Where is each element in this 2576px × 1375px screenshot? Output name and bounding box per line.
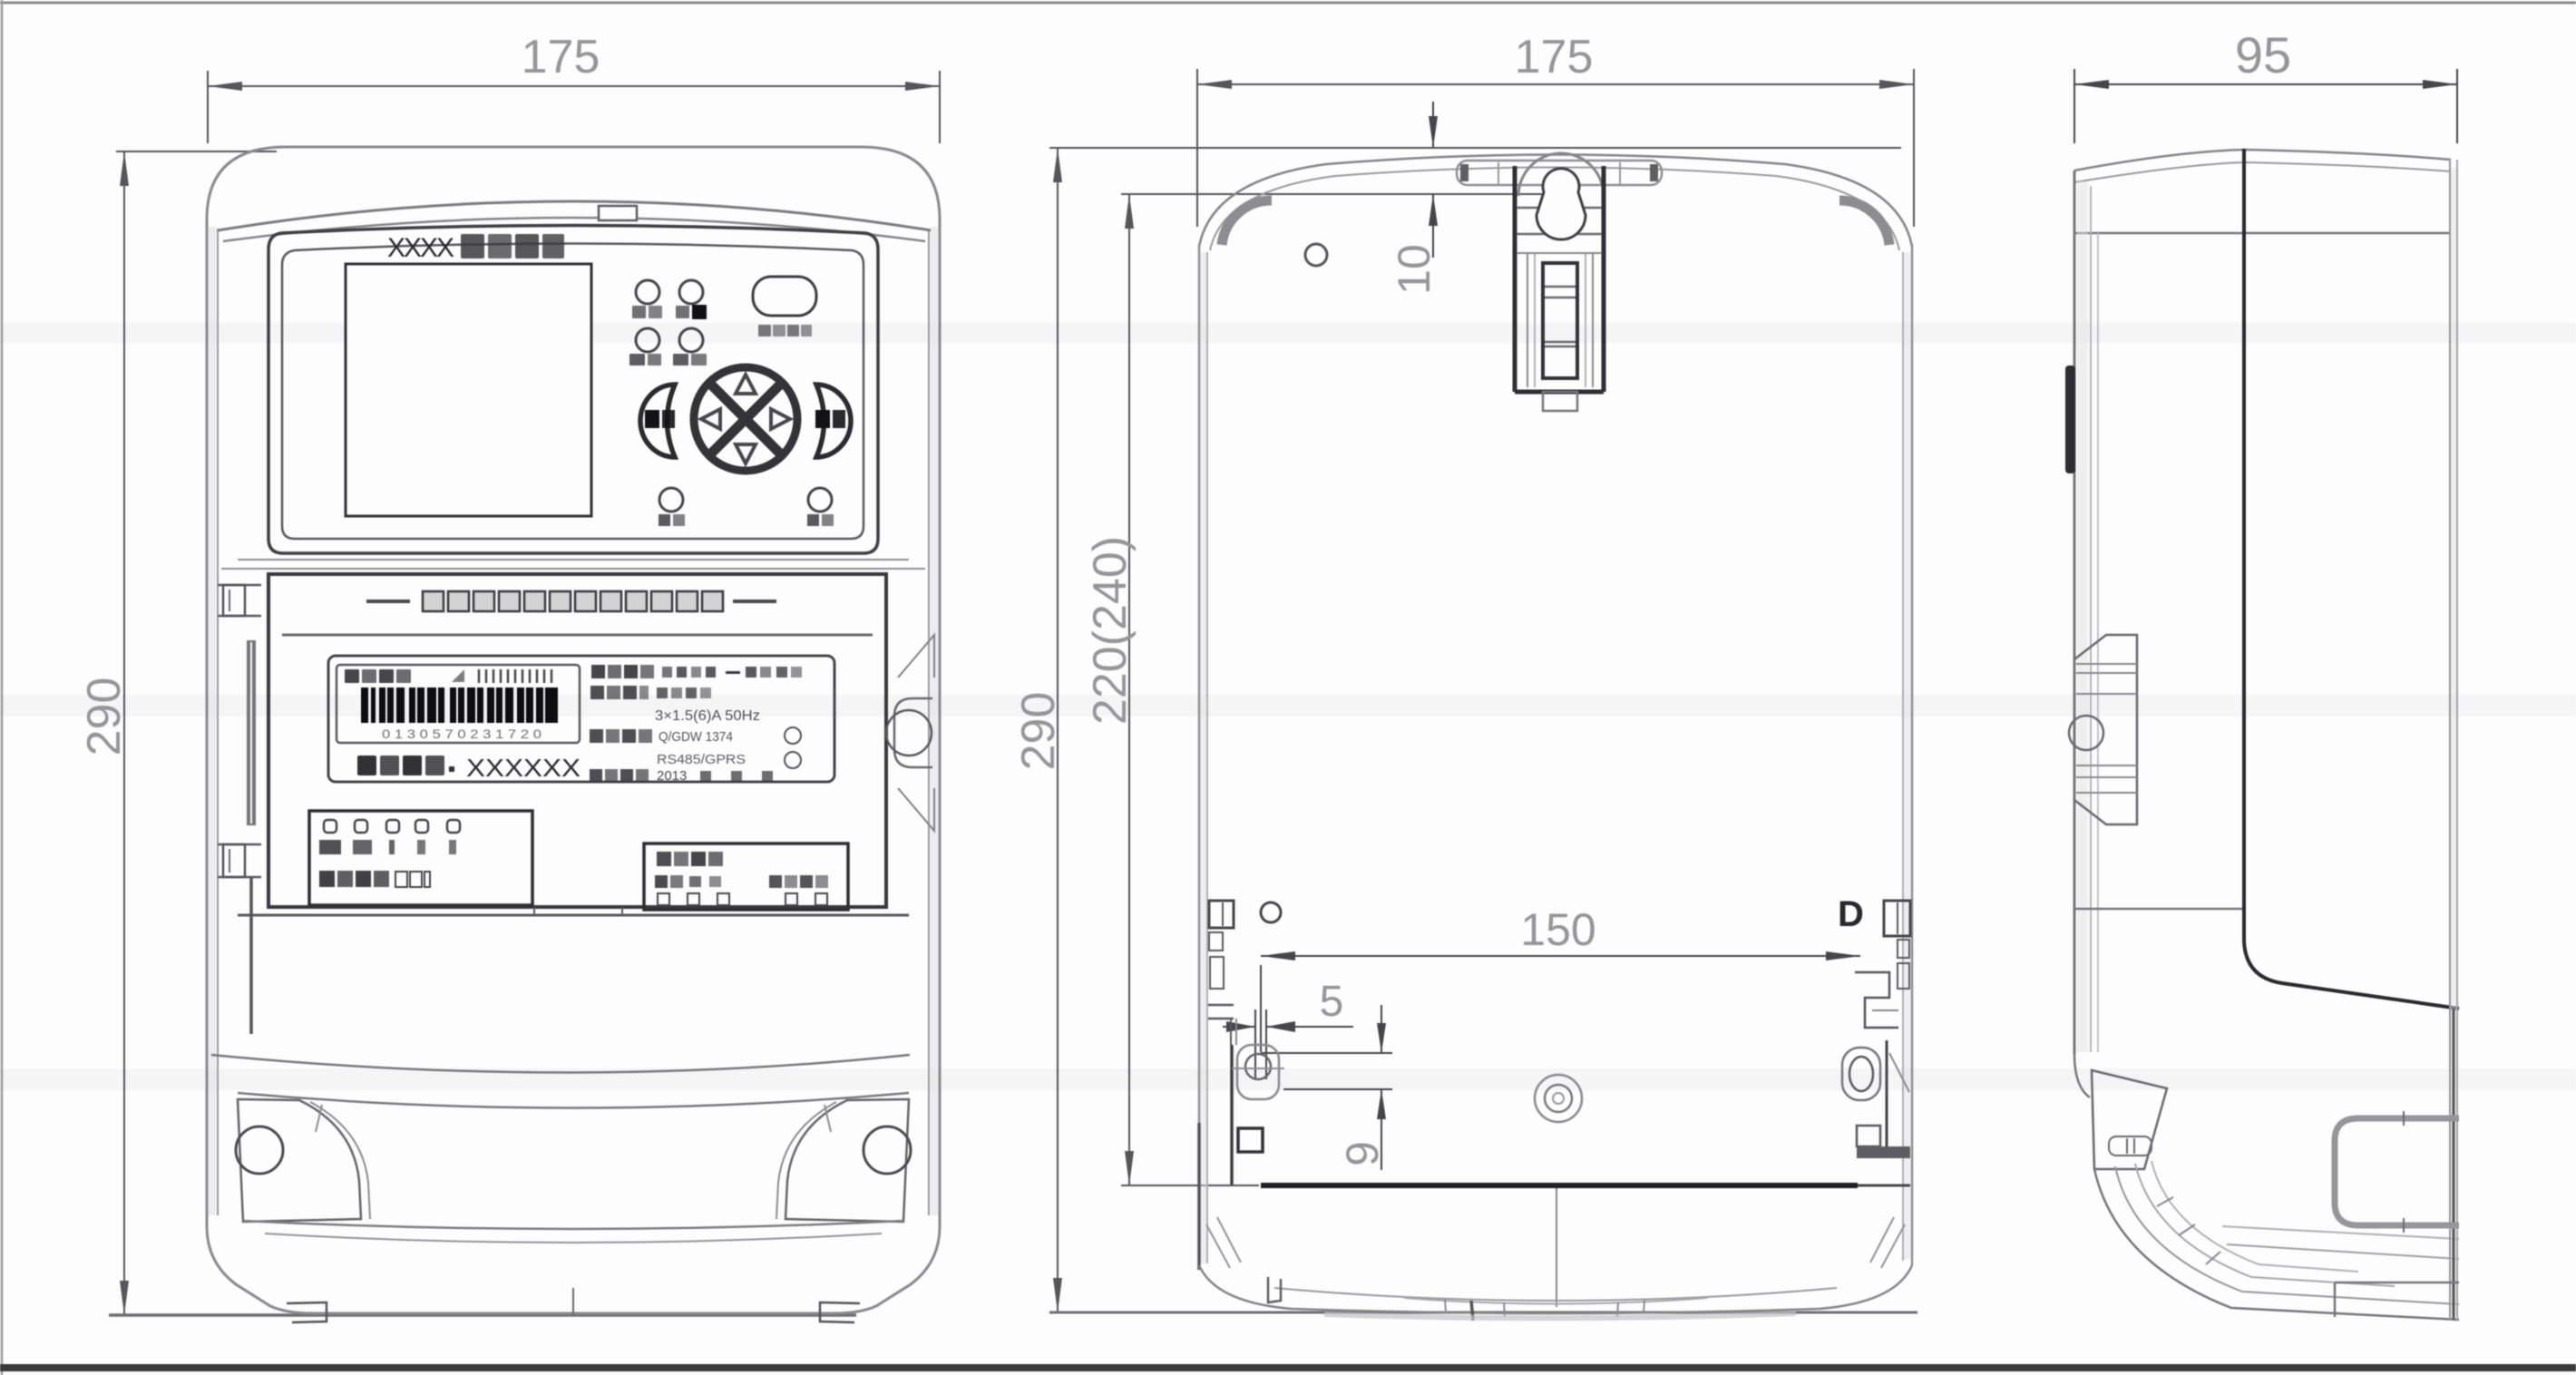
svg-text:10: 10	[1389, 244, 1439, 295]
svg-text:5: 5	[1320, 978, 1344, 1026]
svg-text:XXXXXX: XXXXXX	[466, 754, 581, 782]
svg-text:95: 95	[2235, 26, 2291, 83]
svg-text:150: 150	[1520, 904, 1595, 955]
svg-text:290: 290	[1012, 692, 1065, 771]
svg-text:290: 290	[78, 678, 131, 756]
svg-text:XXXX: XXXX	[387, 233, 454, 263]
svg-text:175: 175	[1515, 31, 1594, 83]
svg-text:2013: 2013	[657, 768, 687, 784]
svg-text:RS485/GPRS: RS485/GPRS	[657, 752, 746, 767]
svg-text:3×1.5(6)A 50Hz: 3×1.5(6)A 50Hz	[655, 708, 760, 724]
svg-text:0 1 3 0 5 7 0 2 3 1 7 2 0: 0 1 3 0 5 7 0 2 3 1 7 2 0	[382, 727, 542, 741]
svg-text:175: 175	[522, 31, 600, 83]
svg-text:220(240): 220(240)	[1084, 536, 1137, 725]
svg-text:Q/GDW 1374: Q/GDW 1374	[659, 729, 733, 745]
svg-text:D: D	[1838, 894, 1864, 934]
svg-text:9: 9	[1337, 1141, 1388, 1166]
